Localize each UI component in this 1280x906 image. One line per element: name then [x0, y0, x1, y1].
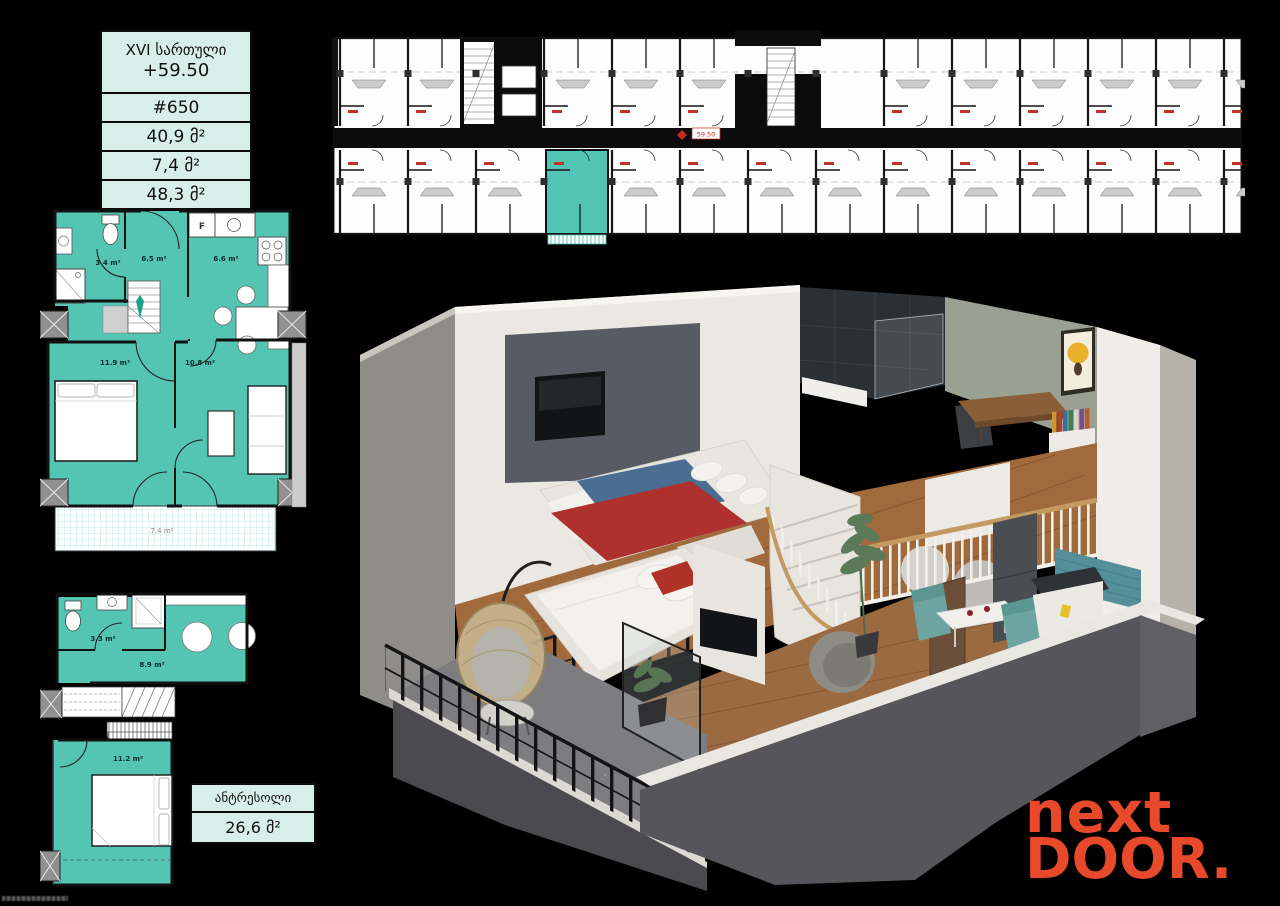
balcony-area-label: 7.4 m² — [151, 527, 174, 535]
bathroom-area-label: 3.3 m² — [90, 635, 115, 643]
unit-info-card: XVI სართული +59.50 #650 40,9 მ² 7,4 მ² 4… — [100, 30, 252, 210]
mezzanine-info-card: ანტრესოლი 26,6 მ² — [190, 783, 316, 844]
living-area-label: 10.8 m² — [185, 359, 215, 367]
apartment-plan-mezzanine: 3.3 m² 8.9 m² 11.2 m² — [40, 588, 270, 906]
next-door-logo: next DOOR. — [1025, 790, 1235, 883]
staircase — [62, 687, 175, 740]
logo-line2: DOOR — [1025, 827, 1211, 892]
area-apartment: 40,9 მ² — [102, 121, 250, 150]
kitchen-area-label: 6.6 m² — [213, 255, 238, 263]
hall-area-label: 6.5 m² — [141, 255, 166, 263]
bathroom-area-label: 3.4 m² — [95, 259, 120, 267]
lounge-area-label: 8.9 m² — [139, 661, 164, 669]
bedroom-area-label: 11.9 m² — [100, 359, 130, 367]
highlighted-unit — [546, 150, 608, 244]
fridge-label: F — [199, 222, 205, 232]
corridor — [334, 128, 1241, 148]
apartment-plan-main-level: F — [40, 203, 310, 558]
mezzanine-title: ანტრესოლი — [192, 785, 314, 811]
elevation-label: +59.50 — [143, 60, 210, 83]
corridor-elevation-label: 59.50 — [697, 131, 716, 139]
bedroom-furniture — [55, 381, 137, 461]
building-floor-plan: 59.50 — [330, 28, 1245, 246]
watermark — [2, 896, 68, 901]
logo-dot: . — [1211, 827, 1232, 892]
wall-art-poster — [1061, 327, 1095, 396]
page: { "colors": {"accent_teal":"#54c4b3","ca… — [0, 0, 1280, 905]
stair-core-b — [735, 30, 821, 128]
stair-core-a — [460, 38, 542, 128]
bedroom-area-label: 11.2 m² — [113, 755, 143, 763]
area-balcony: 7,4 მ² — [102, 150, 250, 179]
floor-label: XVI სართული — [126, 41, 227, 60]
bed — [92, 775, 172, 846]
unit-number: #650 — [102, 92, 250, 121]
mezzanine-area: 26,6 მ² — [192, 811, 314, 842]
